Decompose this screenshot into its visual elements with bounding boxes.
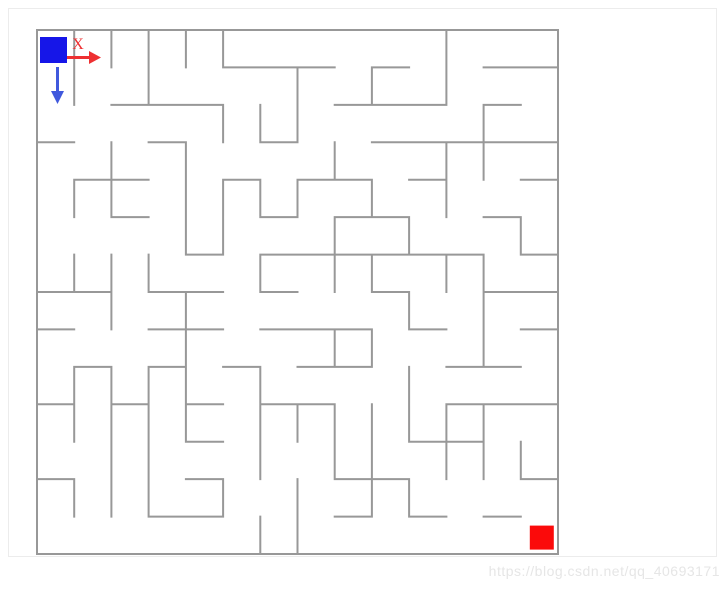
goal-marker <box>530 526 554 550</box>
x-axis-label: X <box>72 36 84 53</box>
content-frame <box>9 9 717 557</box>
watermark: https://blog.csdn.net/qq_40693171 <box>489 563 720 579</box>
maze-canvas: X <box>0 0 725 592</box>
maze-walls <box>37 30 558 554</box>
start-marker <box>40 37 67 63</box>
y-axis-arrow <box>51 67 64 104</box>
